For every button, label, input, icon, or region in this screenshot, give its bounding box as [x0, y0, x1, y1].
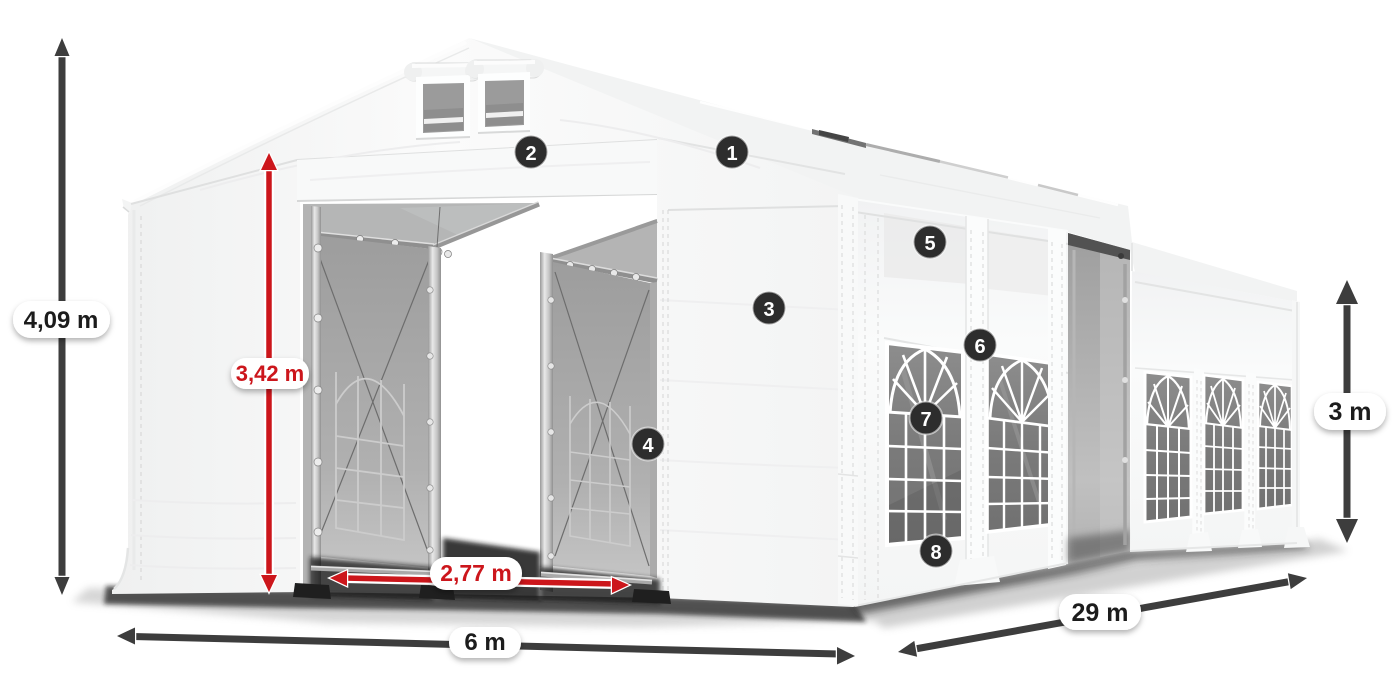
svg-text:3,42 m: 3,42 m: [236, 361, 305, 386]
svg-text:2,77 m: 2,77 m: [440, 560, 512, 586]
svg-text:4: 4: [642, 435, 654, 457]
svg-text:29 m: 29 m: [1072, 599, 1129, 627]
svg-text:8: 8: [930, 542, 941, 564]
svg-text:3: 3: [763, 299, 774, 321]
svg-text:3 m: 3 m: [1328, 398, 1371, 426]
svg-text:7: 7: [920, 409, 931, 431]
svg-text:1: 1: [726, 143, 737, 165]
svg-text:4,09 m: 4,09 m: [24, 307, 99, 334]
svg-text:6 m: 6 m: [464, 629, 505, 656]
svg-text:6: 6: [974, 336, 985, 358]
svg-text:2: 2: [525, 143, 536, 165]
svg-text:5: 5: [924, 233, 935, 255]
